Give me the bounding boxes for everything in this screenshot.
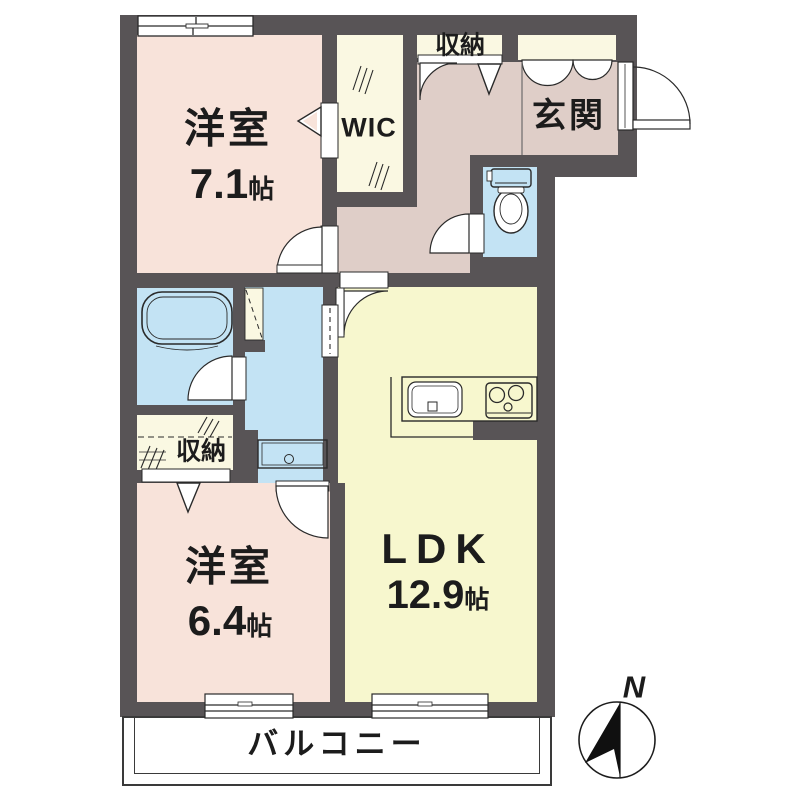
window-ldk-icon — [372, 694, 488, 718]
ldk-door-icon — [336, 272, 388, 337]
washing-machine-pan-icon — [258, 440, 327, 468]
ldk-size-label: 12.9帖 — [387, 575, 490, 615]
bedroom1-size-unit: 帖 — [248, 174, 274, 204]
entrance-label: 玄関 — [532, 99, 606, 133]
shoe-cabinet-doors-icon — [522, 60, 612, 86]
bedroom2-size-value: 6.4 — [188, 597, 246, 644]
floor-plan: 洋室 7.1帖 WIC 収納 玄関 収納 洋室 6.4帖 LDK 12.9帖 バ… — [0, 0, 800, 800]
window-bedroom1-icon — [138, 16, 253, 36]
toilet-icon — [487, 169, 531, 233]
wall-stub-kitchen — [473, 420, 537, 440]
wic-label: WIC — [341, 115, 396, 142]
closet-mid-door-icon — [142, 469, 230, 512]
bedroom1-name-label: 洋室 — [184, 109, 272, 150]
compass-north-label: N — [623, 672, 645, 703]
wall-stub-pan-left — [245, 430, 258, 483]
ldk-name-label: LDK — [381, 528, 494, 570]
entrance-door-icon — [618, 62, 690, 130]
bathtub-icon — [142, 292, 232, 350]
compass-icon — [579, 702, 655, 778]
toilet-door-icon — [430, 214, 484, 253]
bedroom2-door-icon — [276, 481, 329, 538]
bedroom1-size-label: 7.1帖 — [190, 163, 274, 205]
wic-opening-icon — [298, 103, 338, 158]
bedroom1-door-icon — [277, 226, 338, 273]
closet-top-label: 収納 — [435, 34, 485, 59]
plan-lineart — [0, 0, 800, 800]
bedroom2-name-label: 洋室 — [185, 547, 273, 588]
closet-mid-label: 収納 — [176, 440, 226, 465]
linen-cabinet-icon — [245, 288, 263, 340]
closet-top-door-icon — [418, 55, 502, 100]
bedroom2-size-label: 6.4帖 — [188, 600, 272, 642]
washroom-sliding-door-icon — [322, 305, 338, 357]
bath-door-icon — [188, 356, 246, 400]
bedroom2-size-unit: 帖 — [246, 611, 272, 641]
ldk-size-value: 12.9 — [387, 573, 465, 617]
ldk-size-unit: 帖 — [464, 586, 489, 614]
kitchen-sink-icon — [408, 382, 462, 417]
bedroom1-size-value: 7.1 — [190, 160, 248, 207]
wall-stub-washroom — [245, 340, 265, 352]
window-bedroom2-icon — [205, 694, 293, 718]
balcony-label: バルコニー — [247, 729, 426, 760]
